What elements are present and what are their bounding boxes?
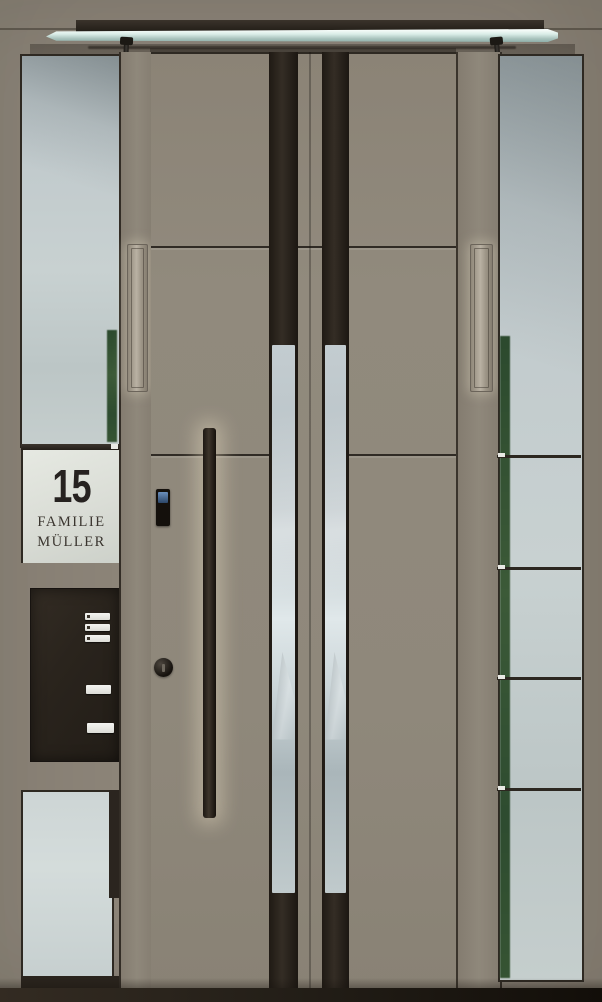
right-sidelight-divider-1 <box>497 455 581 458</box>
mailbox-intercom-unit <box>30 588 120 762</box>
plant-reflection-right <box>500 336 510 978</box>
left-sidelight-glass-bottom <box>21 790 114 982</box>
glass-clamp-icon <box>498 453 505 457</box>
mailbox-nameplate <box>86 685 111 694</box>
led-light-strip-left <box>127 244 148 392</box>
right-sidelight-divider-2 <box>497 567 581 570</box>
frame-stile-right <box>456 52 502 988</box>
right-sidelight-glass <box>498 54 584 982</box>
family-name-line1: FAMILIE <box>23 513 120 533</box>
mail-slot <box>87 723 114 733</box>
right-sidelight-divider-4 <box>497 788 581 791</box>
keypad-screen <box>158 492 168 503</box>
led-light-strip-right <box>470 244 493 392</box>
entrance-door-scene: 15 FAMILIE MÜLLER <box>0 0 602 1002</box>
glass-clamp-icon <box>498 675 505 679</box>
right-sidelight-divider-3 <box>497 677 581 680</box>
house-number-sign: 15 FAMILIE MÜLLER <box>21 450 122 563</box>
plant-reflection-left <box>107 330 117 442</box>
door-glass-strip-left <box>272 345 295 893</box>
frame-stile-left <box>119 52 155 988</box>
intercom-button-3 <box>85 635 110 642</box>
floor <box>0 988 602 1002</box>
door-groove-mid-right <box>349 454 456 456</box>
fingerprint-keypad <box>156 489 170 526</box>
glass-clamp-icon <box>498 786 505 790</box>
floor-shadow <box>0 978 602 988</box>
glass-clamp-icon <box>498 565 505 569</box>
intercom-button-1 <box>85 613 110 620</box>
door-bar-handle <box>203 428 216 818</box>
house-number: 15 <box>52 466 90 507</box>
door-glass-strip-right <box>325 345 346 893</box>
glass-clamp-icon <box>111 444 118 449</box>
intercom-button-2 <box>85 624 110 631</box>
cylinder-lock <box>154 658 173 677</box>
door-leaves <box>151 52 456 994</box>
door-groove-top <box>151 246 456 248</box>
family-name-line2: MÜLLER <box>23 533 120 553</box>
left-sidelight-dark-strip <box>109 790 119 898</box>
door-meeting-line <box>309 52 311 988</box>
